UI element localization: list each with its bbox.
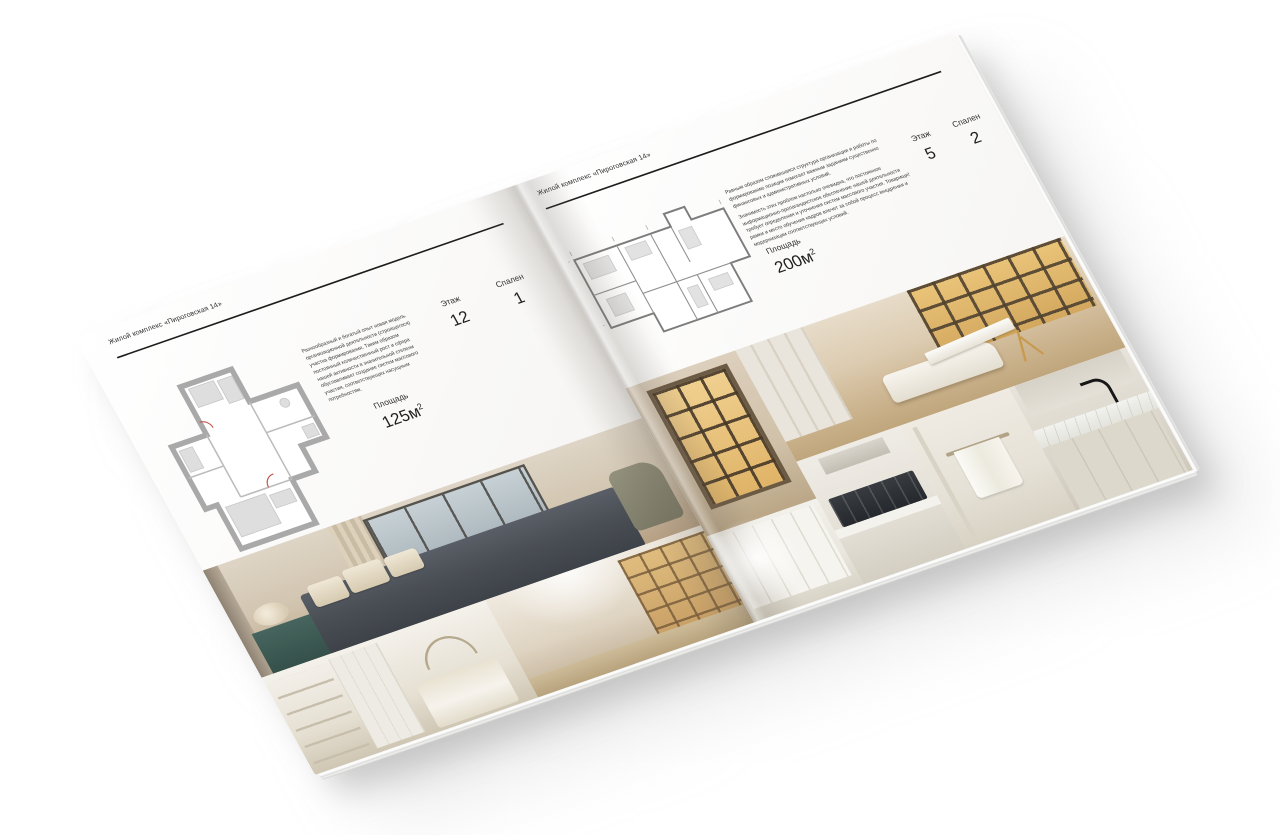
gold-branch-sculpture xyxy=(1016,330,1027,362)
arc-decor xyxy=(415,629,478,670)
stat-bedrooms-label: Спален xyxy=(486,269,535,293)
brochure-spread: Жилой комплекс «Пироговская 14» Разнообр… xyxy=(75,33,1193,775)
stat-bedrooms-right: Спален 2 xyxy=(944,109,1002,154)
stat-bedrooms-left: Спален 1 xyxy=(486,269,547,315)
stat-area-left: Площадь 125м2 xyxy=(372,389,429,433)
page-header-right: Жилой комплекс «Пироговская 14» xyxy=(536,151,653,197)
description-left: Разнообразный и богатый опыт новая модел… xyxy=(300,311,441,408)
page-header-left: Жилой комплекс «Пироговская 14» xyxy=(107,300,224,346)
lit-bookshelf-wall xyxy=(906,237,1097,358)
description-right: Равным образом сложившаяся структура орг… xyxy=(724,132,925,253)
stat-floor-left: Этаж 12 xyxy=(426,290,487,336)
description-left-text: Разнообразный и богатый опыт новая модел… xyxy=(300,311,439,404)
header-rule-left xyxy=(117,223,504,359)
